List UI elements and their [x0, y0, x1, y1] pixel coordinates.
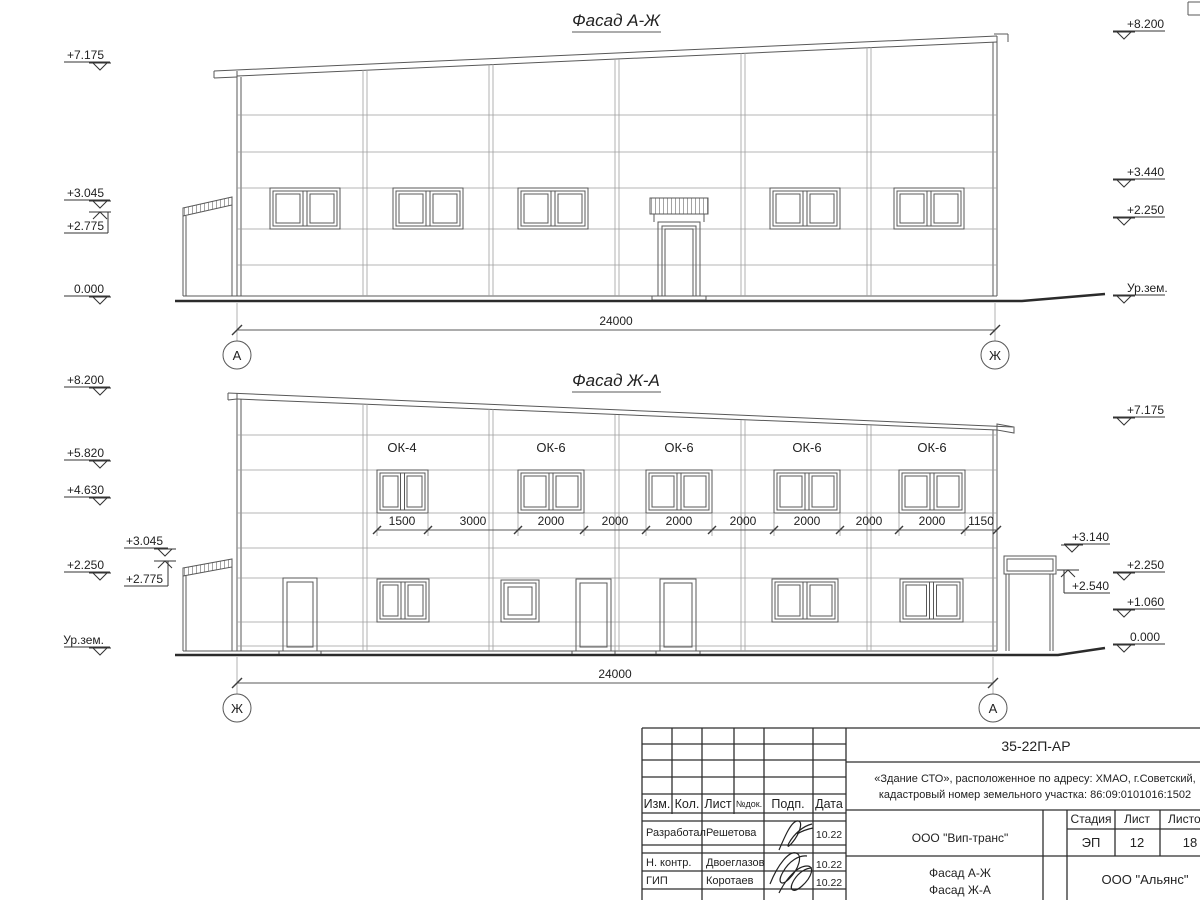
- stage-label: Стадия: [1071, 812, 1112, 826]
- col-izm: Изм.: [644, 797, 671, 811]
- porch: [183, 197, 237, 296]
- window: [393, 188, 463, 229]
- door: [656, 579, 700, 655]
- window-label: ОК-6: [792, 440, 821, 455]
- svg-text:Ж: Ж: [231, 701, 243, 716]
- window: [900, 579, 963, 622]
- elevation-mark: +5.820: [64, 446, 111, 468]
- svg-text:Ур.зем.: Ур.зем.: [63, 633, 104, 647]
- svg-text:+8.200: +8.200: [67, 373, 104, 387]
- svg-text:+3.440: +3.440: [1127, 165, 1164, 179]
- door: [572, 579, 615, 655]
- signature-table: Изм. Кол. Лист №док. Подп. Дата Разработ…: [642, 728, 846, 900]
- axis-marker: А: [223, 341, 251, 369]
- elevation-mark: +2.540: [1057, 570, 1110, 593]
- dimension-label: 2000: [602, 514, 629, 528]
- elevation-mark: +8.200: [1113, 17, 1165, 39]
- svg-text:+2.775: +2.775: [126, 572, 163, 586]
- dimension-label: 1500: [389, 514, 416, 528]
- col-data: Дата: [815, 797, 843, 811]
- elevation-mark: 0.000: [1113, 630, 1165, 652]
- row-date: 10.22: [816, 829, 842, 841]
- dimension-label: 2000: [919, 514, 946, 528]
- svg-text:+3.140: +3.140: [1072, 530, 1109, 544]
- elevation-mark: +3.045: [124, 534, 176, 556]
- svg-text:+5.820: +5.820: [67, 446, 104, 460]
- svg-text:+1.060: +1.060: [1127, 595, 1164, 609]
- dimension-chain: 1500 3000 2000 2000 2000 2000 2000 2000 …: [373, 513, 1001, 536]
- company-name: ООО "Вип-транс": [912, 831, 1009, 845]
- elevation-mark: +7.175: [64, 48, 111, 70]
- drawing-title-line1: Фасад А-Ж: [929, 866, 991, 880]
- elevation-mark: +7.175: [1113, 403, 1165, 425]
- drawing-canvas: Фасад А-Ж: [0, 0, 1200, 900]
- svg-text:А: А: [233, 348, 242, 363]
- sheet-label: Лист: [1124, 812, 1151, 826]
- window: [899, 470, 965, 513]
- elevation-mark: +2.775: [124, 561, 176, 586]
- project-description-line2: кадастровый номер земельного участка: 86…: [879, 789, 1191, 801]
- window: [894, 188, 964, 229]
- window: [518, 188, 588, 229]
- elevation-mark: 0.000: [64, 282, 111, 304]
- col-kol: Кол.: [675, 797, 700, 811]
- axis-marker: А: [979, 694, 1007, 722]
- doc-number: 35-22П-АР: [1001, 738, 1070, 754]
- elevation-mark: +8.200: [64, 373, 111, 395]
- elevation-mark: +2.250: [1113, 558, 1165, 580]
- row-role: ГИП: [646, 875, 668, 887]
- elevation-mark: Ур.зем.: [1113, 281, 1168, 303]
- svg-text:Ж: Ж: [989, 348, 1001, 363]
- svg-text:+7.175: +7.175: [1127, 403, 1164, 417]
- col-list: Лист: [704, 797, 731, 811]
- row-name: Коротаев: [706, 875, 754, 887]
- ground-line: [175, 294, 1105, 301]
- dimension-label: 24000: [598, 667, 632, 681]
- window: [772, 579, 838, 622]
- dimension-label: 2000: [666, 514, 693, 528]
- svg-text:0.000: 0.000: [1130, 630, 1160, 644]
- row-date: 10.22: [816, 877, 842, 889]
- sheet-frame-corner: [1188, 2, 1200, 15]
- sheets-label: Листов: [1168, 812, 1200, 826]
- door: [279, 578, 321, 655]
- building-outline: [214, 34, 1008, 296]
- col-podp: Подп.: [771, 797, 804, 811]
- svg-text:+2.775: +2.775: [67, 219, 104, 233]
- svg-text:А: А: [989, 701, 998, 716]
- entrance-canopy: [1004, 556, 1056, 651]
- dimension-label: 2000: [538, 514, 565, 528]
- title-block: Изм. Кол. Лист №док. Подп. Дата Разработ…: [642, 728, 1200, 900]
- org-name: ООО "Альянс": [1102, 872, 1189, 887]
- dimension-label: 2000: [856, 514, 883, 528]
- facade-a-zh-drawing: Фасад А-Ж: [64, 11, 1168, 369]
- svg-text:+4.630: +4.630: [67, 483, 104, 497]
- sheets-value: 18: [1183, 835, 1197, 850]
- elevation-mark: +3.045: [64, 186, 111, 208]
- svg-text:+7.175: +7.175: [67, 48, 104, 62]
- window-label: ОК-6: [664, 440, 693, 455]
- svg-text:0.000: 0.000: [74, 282, 104, 296]
- dimension-label: 3000: [460, 514, 487, 528]
- elevation-mark: Ур.зем.: [63, 633, 111, 655]
- window: [518, 470, 584, 513]
- row-name: Решетова: [706, 827, 757, 839]
- window-label: ОК-6: [536, 440, 565, 455]
- elevation-mark: +2.250: [64, 558, 111, 580]
- svg-text:+3.045: +3.045: [126, 534, 163, 548]
- window: [774, 470, 840, 513]
- row-name: Двоеглазов: [706, 857, 765, 869]
- dimension-label: 1150: [968, 514, 994, 528]
- elevation-mark: +1.060: [1113, 595, 1165, 617]
- dimension-label: 2000: [794, 514, 821, 528]
- sheet-value: 12: [1130, 835, 1144, 850]
- row-role: Н. контр.: [646, 857, 691, 869]
- signature: [770, 853, 812, 893]
- svg-text:+2.250: +2.250: [67, 558, 104, 572]
- entrance-door: [650, 198, 708, 300]
- row-role: Разработал: [646, 827, 706, 839]
- facade-title: Фасад А-Ж: [572, 11, 661, 30]
- window-label: ОК-4: [387, 440, 416, 455]
- window-label: ОК-6: [917, 440, 946, 455]
- window: [377, 579, 429, 622]
- dimension-label: 2000: [730, 514, 757, 528]
- dimension: 24000: [232, 303, 1000, 341]
- axis-marker: Ж: [981, 341, 1009, 369]
- elevation-mark: +3.140: [1061, 530, 1110, 552]
- svg-text:+2.250: +2.250: [1127, 203, 1164, 217]
- col-ndok: №док.: [736, 799, 762, 809]
- dimension: 24000: [232, 657, 998, 694]
- facade-title: Фасад Ж-А: [572, 371, 660, 390]
- dimension-label: 24000: [599, 314, 633, 328]
- svg-text:+3.045: +3.045: [67, 186, 104, 200]
- elevation-mark: +3.440: [1113, 165, 1165, 187]
- row-date: 10.22: [816, 859, 842, 871]
- window: [770, 188, 840, 229]
- project-description-line1: «Здание СТО», расположенное по адресу: Х…: [874, 773, 1195, 785]
- window: [270, 188, 340, 229]
- elevation-mark: +4.630: [64, 483, 111, 505]
- drawing-title-line2: Фасад Ж-А: [929, 883, 991, 897]
- svg-text:Ур.зем.: Ур.зем.: [1127, 281, 1168, 295]
- stage-value: ЭП: [1082, 835, 1101, 850]
- svg-text:+2.540: +2.540: [1072, 579, 1109, 593]
- elevation-mark: +2.250: [1113, 203, 1165, 225]
- window: [646, 470, 712, 513]
- elevation-mark: +2.775: [64, 212, 111, 233]
- facade-zh-a-drawing: Фасад Ж-А: [63, 371, 1165, 722]
- svg-text:+2.250: +2.250: [1127, 558, 1164, 572]
- window: [501, 580, 539, 622]
- axis-marker: Ж: [223, 694, 251, 722]
- svg-text:+8.200: +8.200: [1127, 17, 1164, 31]
- porch: [183, 559, 237, 651]
- window: [377, 470, 428, 513]
